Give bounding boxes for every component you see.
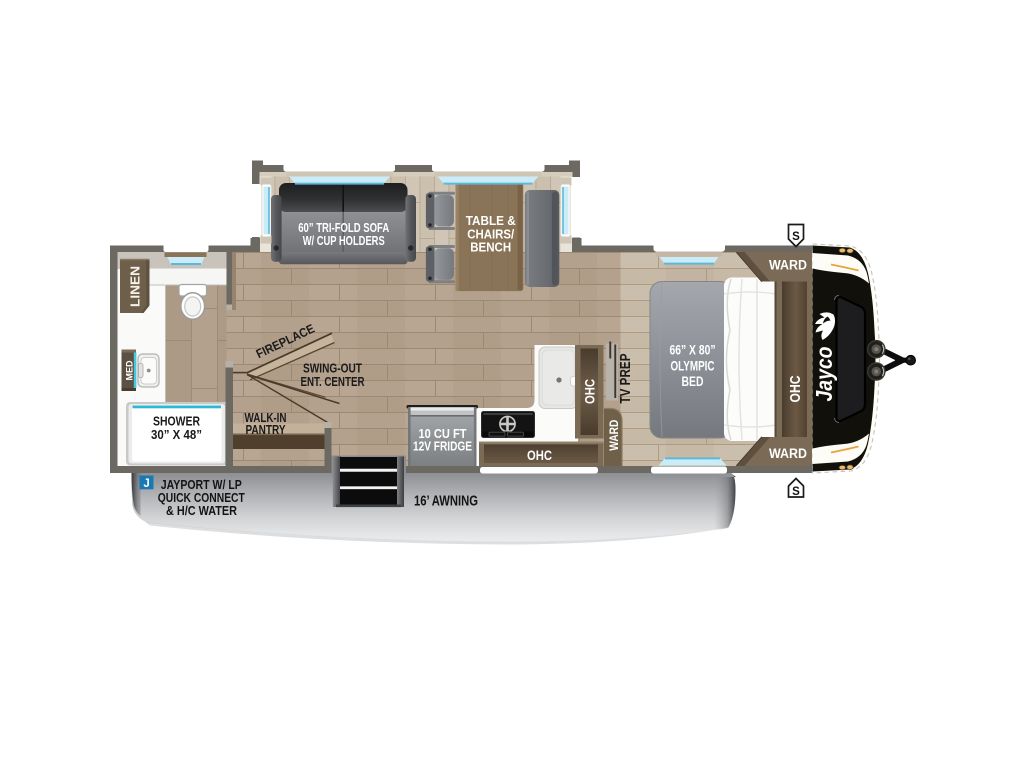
svg-text:W/ CUP HOLDERS: W/ CUP HOLDERS [303, 234, 385, 248]
svg-text:& H/C WATER: & H/C WATER [166, 503, 238, 518]
svg-text:16’ AWNING: 16’ AWNING [414, 493, 478, 509]
svg-text:TV PREP: TV PREP [617, 354, 634, 404]
svg-text:OHC: OHC [527, 447, 552, 463]
svg-text:OHC: OHC [788, 375, 804, 402]
svg-text:BENCH: BENCH [470, 240, 511, 255]
svg-text:WARD: WARD [769, 257, 807, 272]
svg-text:WARD: WARD [769, 446, 807, 461]
svg-text:S: S [792, 231, 800, 243]
svg-text:66” X 80”: 66” X 80” [670, 342, 716, 358]
svg-text:SHOWER: SHOWER [153, 414, 200, 428]
svg-text:30” X 48”: 30” X 48” [151, 428, 202, 442]
svg-text:ENT. CENTER: ENT. CENTER [301, 375, 365, 389]
svg-text:PANTRY: PANTRY [246, 423, 287, 437]
svg-text:WARD: WARD [609, 420, 621, 451]
svg-text:BED: BED [682, 373, 704, 389]
svg-text:12V FRIDGE: 12V FRIDGE [413, 439, 472, 454]
svg-text:SWING-OUT: SWING-OUT [303, 361, 362, 375]
svg-text:OHC: OHC [581, 379, 597, 404]
svg-text:S: S [792, 486, 800, 498]
svg-text:LINEN: LINEN [128, 266, 143, 307]
svg-text:OLYMPIC: OLYMPIC [671, 357, 715, 373]
svg-text:J: J [143, 478, 149, 490]
svg-text:Jayco: Jayco [811, 347, 837, 402]
svg-text:MED: MED [124, 360, 134, 381]
